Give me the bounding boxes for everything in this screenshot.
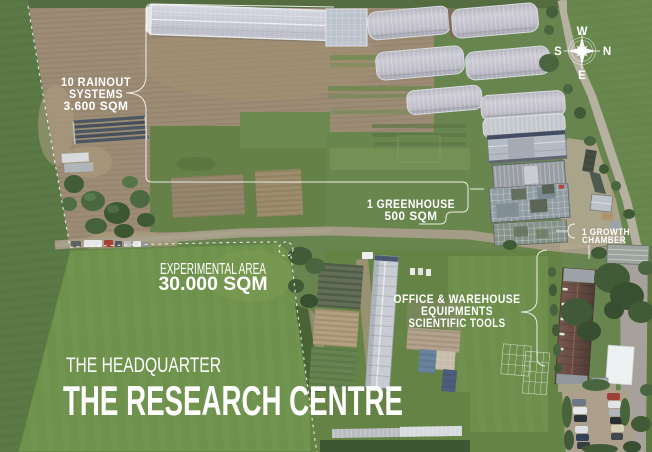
svg-text:3.600 SQM: 3.600 SQM: [64, 101, 129, 113]
svg-text:30.000 SQM: 30.000 SQM: [159, 274, 268, 295]
svg-text:EQUIPMENTS: EQUIPMENTS: [421, 306, 493, 318]
svg-text:SYSTEMS: SYSTEMS: [69, 89, 123, 101]
svg-text:E: E: [578, 70, 586, 82]
svg-text:OFFICE & WAREHOUSE: OFFICE & WAREHOUSE: [394, 294, 521, 306]
svg-text:CHAMBER: CHAMBER: [582, 235, 626, 246]
svg-text:W: W: [577, 26, 588, 38]
svg-text:THE HEADQUARTER: THE HEADQUARTER: [66, 354, 221, 377]
svg-text:500 SQM: 500 SQM: [385, 211, 438, 223]
svg-text:10 RAINOUT: 10 RAINOUT: [61, 77, 131, 89]
svg-text:N: N: [603, 46, 611, 58]
svg-text:1 GREENHOUSE: 1 GREENHOUSE: [367, 199, 455, 211]
svg-text:SCIENTIFIC TOOLS: SCIENTIFIC TOOLS: [409, 318, 506, 330]
svg-text:S: S: [554, 46, 562, 58]
svg-text:THE RESEARCH CENTRE: THE RESEARCH CENTRE: [63, 377, 403, 424]
